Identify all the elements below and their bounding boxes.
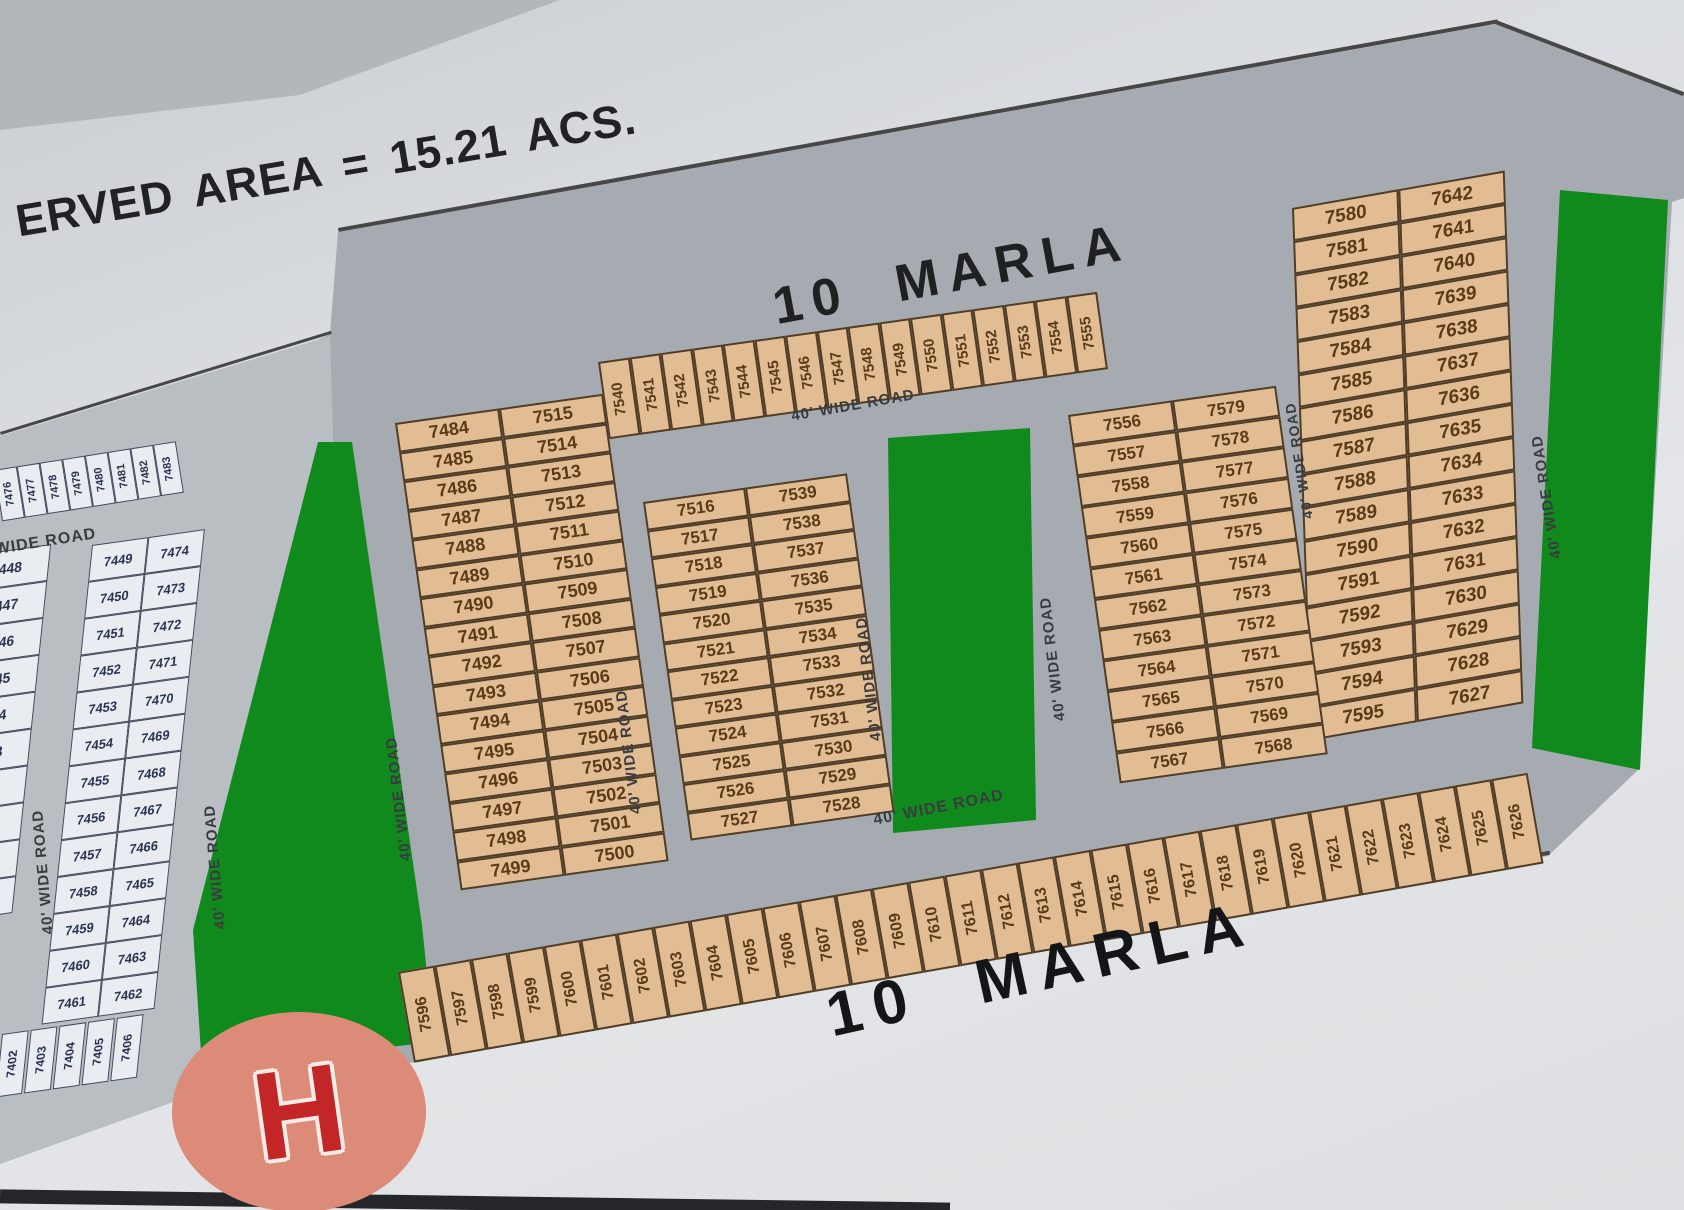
plot-number: 7456 xyxy=(76,808,106,827)
plot-number: 7545 xyxy=(764,359,785,394)
plot-number: 7586 xyxy=(1332,400,1374,430)
plot-number: 7557 xyxy=(1106,441,1146,466)
plot-number: 7568 xyxy=(1253,734,1293,759)
plot-number: 7582 xyxy=(1327,267,1369,297)
plot-number: 7573 xyxy=(1232,580,1272,605)
plot-number: 7553 xyxy=(1014,324,1035,359)
plot-number: 7607 xyxy=(813,924,837,962)
plot-number: 7632 xyxy=(1443,515,1485,545)
plot-number: 7559 xyxy=(1115,503,1155,528)
plot-number: 7625 xyxy=(1469,809,1493,847)
plot-number: 7502 xyxy=(585,782,628,808)
plot-number: 7477 xyxy=(24,477,40,503)
plot-number: 7630 xyxy=(1445,581,1487,611)
plot-number: 7494 xyxy=(469,709,512,735)
plot-number: 7473 xyxy=(156,579,186,598)
plot-number: 7503 xyxy=(581,753,624,779)
plot-number: 7452 xyxy=(92,660,122,679)
plot-number: 7593 xyxy=(1340,633,1382,663)
plot-number: 7465 xyxy=(125,874,155,893)
plot-number: 7498 xyxy=(485,826,528,852)
plot-number: 7522 xyxy=(700,666,740,691)
plot-number: 7556 xyxy=(1102,411,1142,436)
plot-number: 7555 xyxy=(1076,315,1097,350)
plot-number: 7495 xyxy=(473,738,516,764)
plot-number: 7579 xyxy=(1206,396,1246,421)
plot-number: 7467 xyxy=(132,800,162,819)
plot-number: 7497 xyxy=(481,797,524,823)
plot-number: 7597 xyxy=(449,989,473,1027)
plot-number: 7525 xyxy=(712,750,752,775)
plot-number: 7505 xyxy=(573,695,616,721)
plot-number: 7403 xyxy=(32,1045,49,1074)
plot-number: 7459 xyxy=(64,919,94,938)
plot-number: 7506 xyxy=(569,665,612,691)
plot-number: 7510 xyxy=(552,549,595,575)
plot-number: 7564 xyxy=(1137,656,1177,681)
plot-number: 7612 xyxy=(995,892,1019,930)
plot-number: 7611 xyxy=(959,899,983,936)
plot-number: 7471 xyxy=(148,653,178,672)
plot-number: 7584 xyxy=(1329,334,1371,364)
plot-number: 7404 xyxy=(61,1041,78,1070)
plot-number: 7450 xyxy=(99,587,129,606)
plot-number: 7486 xyxy=(436,476,479,502)
plot-number: 7566 xyxy=(1145,717,1185,742)
plot-number: 7628 xyxy=(1447,648,1489,678)
plot-number: 7606 xyxy=(777,931,801,969)
plot-number: 7539 xyxy=(778,482,818,507)
plot-number: 7480 xyxy=(92,466,108,492)
plot-number: 7513 xyxy=(540,461,583,487)
plot-number: 7481 xyxy=(115,463,131,489)
plot-number: 7509 xyxy=(556,578,599,604)
plot-number: 7575 xyxy=(1223,519,1263,544)
plot-number: 7620 xyxy=(1287,841,1311,879)
plot-number: 7569 xyxy=(1249,703,1289,728)
plot-number: 7590 xyxy=(1336,534,1378,564)
hospital-letter: H xyxy=(246,1044,353,1180)
plot-number: 7443 xyxy=(0,743,4,764)
plot-number: 7633 xyxy=(1441,481,1483,511)
plot-number: 7511 xyxy=(549,519,591,545)
plot-number: 7601 xyxy=(594,963,618,1001)
plot-number: 7609 xyxy=(886,911,910,949)
plot-number: 7533 xyxy=(802,651,842,676)
plot-number: 7548 xyxy=(858,346,879,381)
plot-number: 7619 xyxy=(1250,847,1274,885)
plot-number: 7447 xyxy=(0,595,19,616)
plot-number: 7580 xyxy=(1325,201,1367,231)
plot-number: 7627 xyxy=(1448,681,1490,711)
plot-number: 7563 xyxy=(1132,625,1172,650)
plot-number: 7493 xyxy=(465,680,508,706)
plot-number: 7640 xyxy=(1433,248,1475,278)
plot-number: 7574 xyxy=(1228,549,1268,574)
plot-number: 7637 xyxy=(1437,348,1479,378)
plot-number: 7446 xyxy=(0,632,15,653)
plot-number: 7641 xyxy=(1432,215,1474,245)
plot-number: 7518 xyxy=(684,553,724,578)
plot-number: 7448 xyxy=(0,558,23,579)
plot-number: 7485 xyxy=(432,446,475,472)
plot-number: 7534 xyxy=(798,623,838,648)
plot-number: 7572 xyxy=(1236,611,1276,636)
plot-number: 7520 xyxy=(692,609,732,634)
plot-number: 7570 xyxy=(1245,672,1285,697)
plot-number: 7585 xyxy=(1330,367,1372,397)
plot-number: 7524 xyxy=(708,722,748,747)
plot-number: 7638 xyxy=(1436,315,1478,345)
plot-number: 7626 xyxy=(1505,802,1529,840)
plot-7406: 7406 xyxy=(110,1014,143,1081)
plot-number: 7496 xyxy=(477,768,520,794)
plot-number: 7560 xyxy=(1119,533,1159,558)
plot-number: 7501 xyxy=(589,811,632,837)
plot-number: 7455 xyxy=(80,771,110,790)
plot-number: 7468 xyxy=(136,763,166,782)
plot-number: 7615 xyxy=(1105,873,1129,911)
plot-number: 7406 xyxy=(119,1033,136,1062)
plot-number: 7608 xyxy=(850,918,874,956)
plot-number: 7483 xyxy=(161,456,177,482)
plot-number: 7457 xyxy=(72,845,102,864)
plot-number: 7531 xyxy=(810,708,850,733)
plot-number: 7479 xyxy=(70,470,86,496)
plot-number: 7504 xyxy=(577,724,620,750)
plot-number: 7636 xyxy=(1438,382,1480,412)
plot-number: 7474 xyxy=(160,542,190,561)
plot-number: 7546 xyxy=(795,354,816,389)
plot-number: 7519 xyxy=(688,581,728,606)
plot-number: 7614 xyxy=(1068,879,1092,917)
plot-number: 7561 xyxy=(1124,564,1164,589)
plot-number: 7451 xyxy=(95,624,125,643)
plot-number: 7592 xyxy=(1339,600,1381,630)
plot-number: 7537 xyxy=(786,539,826,564)
plot-number: 7583 xyxy=(1328,300,1370,330)
plot-number: 7405 xyxy=(90,1037,107,1066)
plot-number: 7487 xyxy=(440,505,483,531)
plot-number: 7453 xyxy=(88,697,118,716)
plot-number: 7507 xyxy=(565,636,608,662)
plot-number: 7613 xyxy=(1032,886,1056,924)
plot-number: 7616 xyxy=(1141,866,1165,904)
paper-edge xyxy=(0,1189,950,1210)
plot-number: 7488 xyxy=(444,534,487,560)
plot-number: 7500 xyxy=(593,841,636,867)
plot-number: 7469 xyxy=(140,726,170,745)
plot-number: 7490 xyxy=(452,592,495,618)
plot-number: 7595 xyxy=(1342,700,1384,730)
plot-number: 7478 xyxy=(47,474,63,500)
plot-number: 7526 xyxy=(716,779,756,804)
plot-number: 7631 xyxy=(1444,548,1486,578)
plot-number: 7463 xyxy=(117,948,147,967)
plot-number: 7517 xyxy=(680,525,720,550)
plot-number: 7571 xyxy=(1241,641,1281,666)
plot-number: 7528 xyxy=(821,793,861,818)
plot-number: 7634 xyxy=(1440,448,1482,478)
plot-number: 7540 xyxy=(608,381,629,416)
plot-number: 7617 xyxy=(1177,860,1201,898)
plot-number: 7532 xyxy=(806,680,846,705)
plot-number: 7558 xyxy=(1111,472,1151,497)
plot-number: 7402 xyxy=(4,1049,21,1078)
plot-number: 7621 xyxy=(1323,834,1347,872)
plot-number: 7449 xyxy=(103,550,133,569)
plot-number: 7596 xyxy=(412,995,436,1033)
plot-number: 7610 xyxy=(922,905,946,943)
plot-number: 7588 xyxy=(1334,467,1376,497)
plot-number: 7536 xyxy=(790,567,830,592)
plot-number: 7549 xyxy=(889,341,910,376)
plot-number: 7508 xyxy=(560,607,603,633)
plot-number: 7544 xyxy=(733,363,754,398)
plot-number: 7499 xyxy=(489,855,532,881)
plot-number: 7605 xyxy=(740,937,764,975)
plot-number: 7600 xyxy=(558,969,582,1007)
plot-number: 7622 xyxy=(1360,828,1384,866)
plot-number: 7541 xyxy=(639,376,660,411)
plot-number: 7599 xyxy=(522,976,546,1014)
plot-number: 7530 xyxy=(814,736,854,761)
plot-block-7580s: 7580764275817641758276407583763975847638… xyxy=(1292,170,1523,740)
plot-number: 7529 xyxy=(818,764,858,789)
plot-number: 7589 xyxy=(1335,500,1377,530)
plot-number: 7543 xyxy=(702,368,723,403)
plot-number: 7578 xyxy=(1210,427,1250,452)
plot-number: 7516 xyxy=(676,496,716,521)
plot-number: 7460 xyxy=(60,956,90,975)
plot-number: 7567 xyxy=(1149,748,1189,773)
plot-number: 7542 xyxy=(671,372,692,407)
plot-number: 7523 xyxy=(704,694,744,719)
plot-number: 7562 xyxy=(1128,595,1168,620)
plot-number: 7461 xyxy=(57,993,87,1012)
plot-number: 7472 xyxy=(152,616,182,635)
plot-number: 7444 xyxy=(0,706,7,727)
hospital-logo: H xyxy=(172,1012,426,1210)
plot-number: 7550 xyxy=(920,337,941,372)
plot-number: 7618 xyxy=(1214,854,1238,892)
plot-number: 7492 xyxy=(461,651,504,677)
plot-number: 7604 xyxy=(704,944,728,982)
plot-number: 7581 xyxy=(1326,234,1368,264)
plot-number: 7454 xyxy=(84,734,114,753)
plot-number: 7482 xyxy=(138,459,154,485)
plot-number: 7629 xyxy=(1446,615,1488,645)
plot-number: 7547 xyxy=(827,350,848,385)
plot-number: 7551 xyxy=(951,332,972,367)
plot-number: 7598 xyxy=(485,982,509,1020)
plot-number: 7587 xyxy=(1333,434,1375,464)
plot-number: 7527 xyxy=(719,807,759,832)
plot-number: 7624 xyxy=(1433,815,1457,853)
plot-number: 7462 xyxy=(113,985,143,1004)
plot-number: 7521 xyxy=(696,638,736,663)
plot-number: 7554 xyxy=(1045,319,1066,354)
plot-number: 7535 xyxy=(794,595,834,620)
plot-number: 7476 xyxy=(2,481,18,507)
plot-number: 7635 xyxy=(1439,415,1481,445)
plot-number: 7639 xyxy=(1434,282,1476,312)
plot-number: 7458 xyxy=(68,882,98,901)
plot-number: 7603 xyxy=(667,950,691,988)
plot-number: 7491 xyxy=(456,622,499,648)
plot-number: 7538 xyxy=(782,510,822,535)
plot-number: 7514 xyxy=(536,432,579,458)
plot-number: 7512 xyxy=(544,490,587,516)
plot-number: 7565 xyxy=(1141,687,1181,712)
plot-number: 7515 xyxy=(532,403,575,429)
plot-number: 7445 xyxy=(0,669,11,690)
plot-number: 7594 xyxy=(1341,667,1383,697)
plot-number: 7591 xyxy=(1337,567,1379,597)
plot-number: 7623 xyxy=(1396,822,1420,860)
plot-number: 7576 xyxy=(1219,488,1259,513)
plot-number: 7577 xyxy=(1215,457,1255,482)
plot-number: 7466 xyxy=(129,837,159,856)
plot-number: 7642 xyxy=(1431,182,1473,212)
plot-number: 7602 xyxy=(631,956,655,994)
plot-number: 7470 xyxy=(144,689,174,708)
plot-number: 7464 xyxy=(121,911,151,930)
site-plan-photo: 7540754175427543754475457546754775487549… xyxy=(0,0,1684,1210)
plot-number: 7552 xyxy=(983,328,1004,363)
plot-number: 7489 xyxy=(448,563,491,589)
plot-number: 7484 xyxy=(428,417,471,443)
